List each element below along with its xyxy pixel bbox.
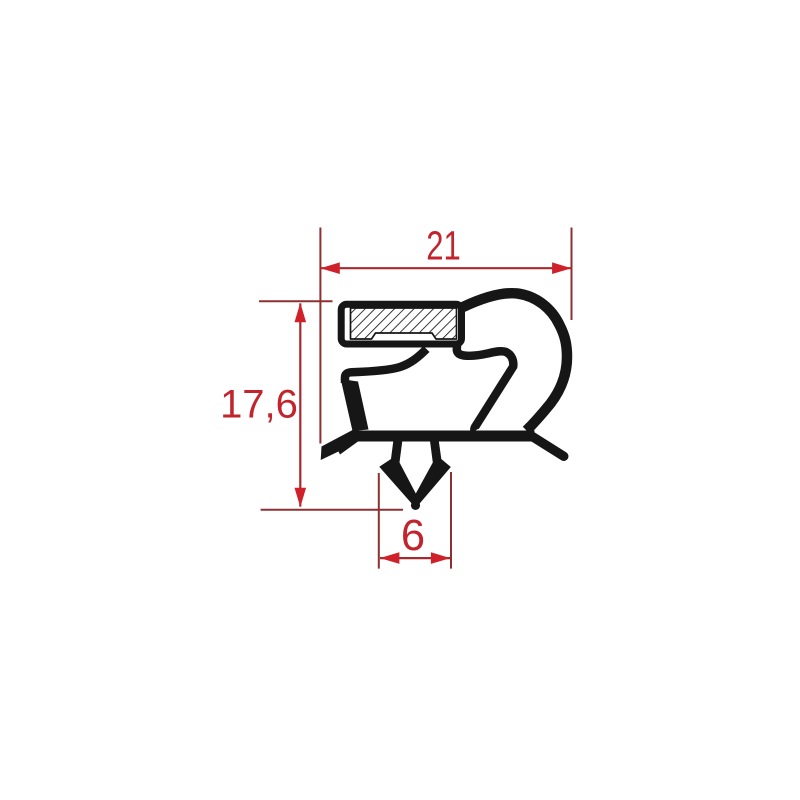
svg-text:17,6: 17,6 <box>220 383 298 427</box>
svg-text:6: 6 <box>401 512 425 560</box>
svg-text:21: 21 <box>426 223 461 269</box>
